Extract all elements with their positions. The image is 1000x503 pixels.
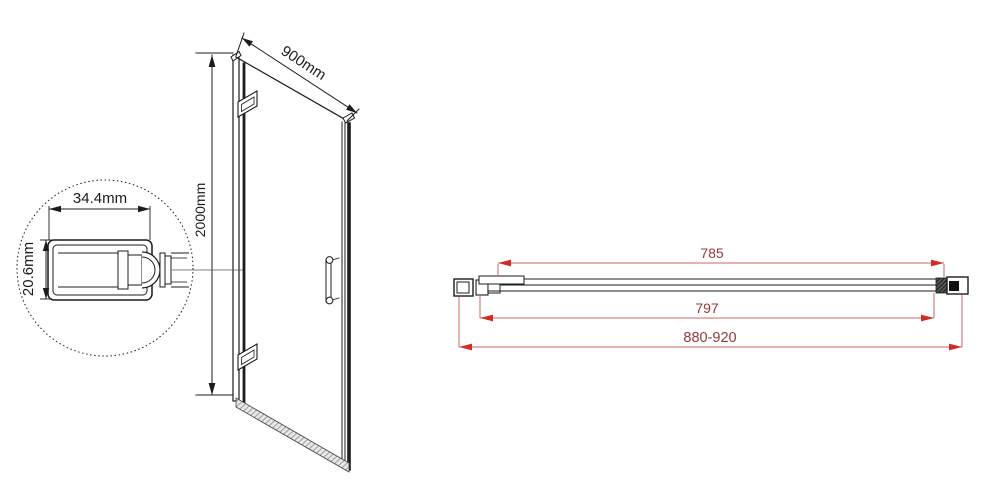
wall-bracket [936, 278, 947, 293]
detail-height-label: 20.6mm [20, 242, 37, 296]
shower-door-diagram: 2000mm 900mm [0, 0, 1000, 503]
technical-drawing-canvas: 2000mm 900mm [0, 0, 1000, 503]
right-profile-insert [949, 281, 959, 291]
clamp-plate [118, 251, 128, 289]
height-dimension-label: 2000mm [192, 183, 208, 237]
handle-top-knob [326, 257, 333, 264]
wall-profile-right [936, 277, 968, 294]
clamp-bracket [128, 255, 142, 285]
detail-width-label: 34.4mm [73, 190, 127, 207]
wall-profile-left [454, 279, 473, 296]
hinge-plate [479, 276, 524, 284]
handle-bar [326, 258, 331, 303]
left-profile-inner [457, 282, 469, 293]
door-width-label: 797 [695, 300, 719, 316]
adjustment-range-label: 880-920 [683, 330, 736, 346]
handle-bottom-knob [326, 297, 333, 304]
clamp-jaw-left [160, 253, 165, 287]
clamp-jaw-right [165, 256, 171, 284]
glass-width-label: 785 [700, 245, 724, 261]
